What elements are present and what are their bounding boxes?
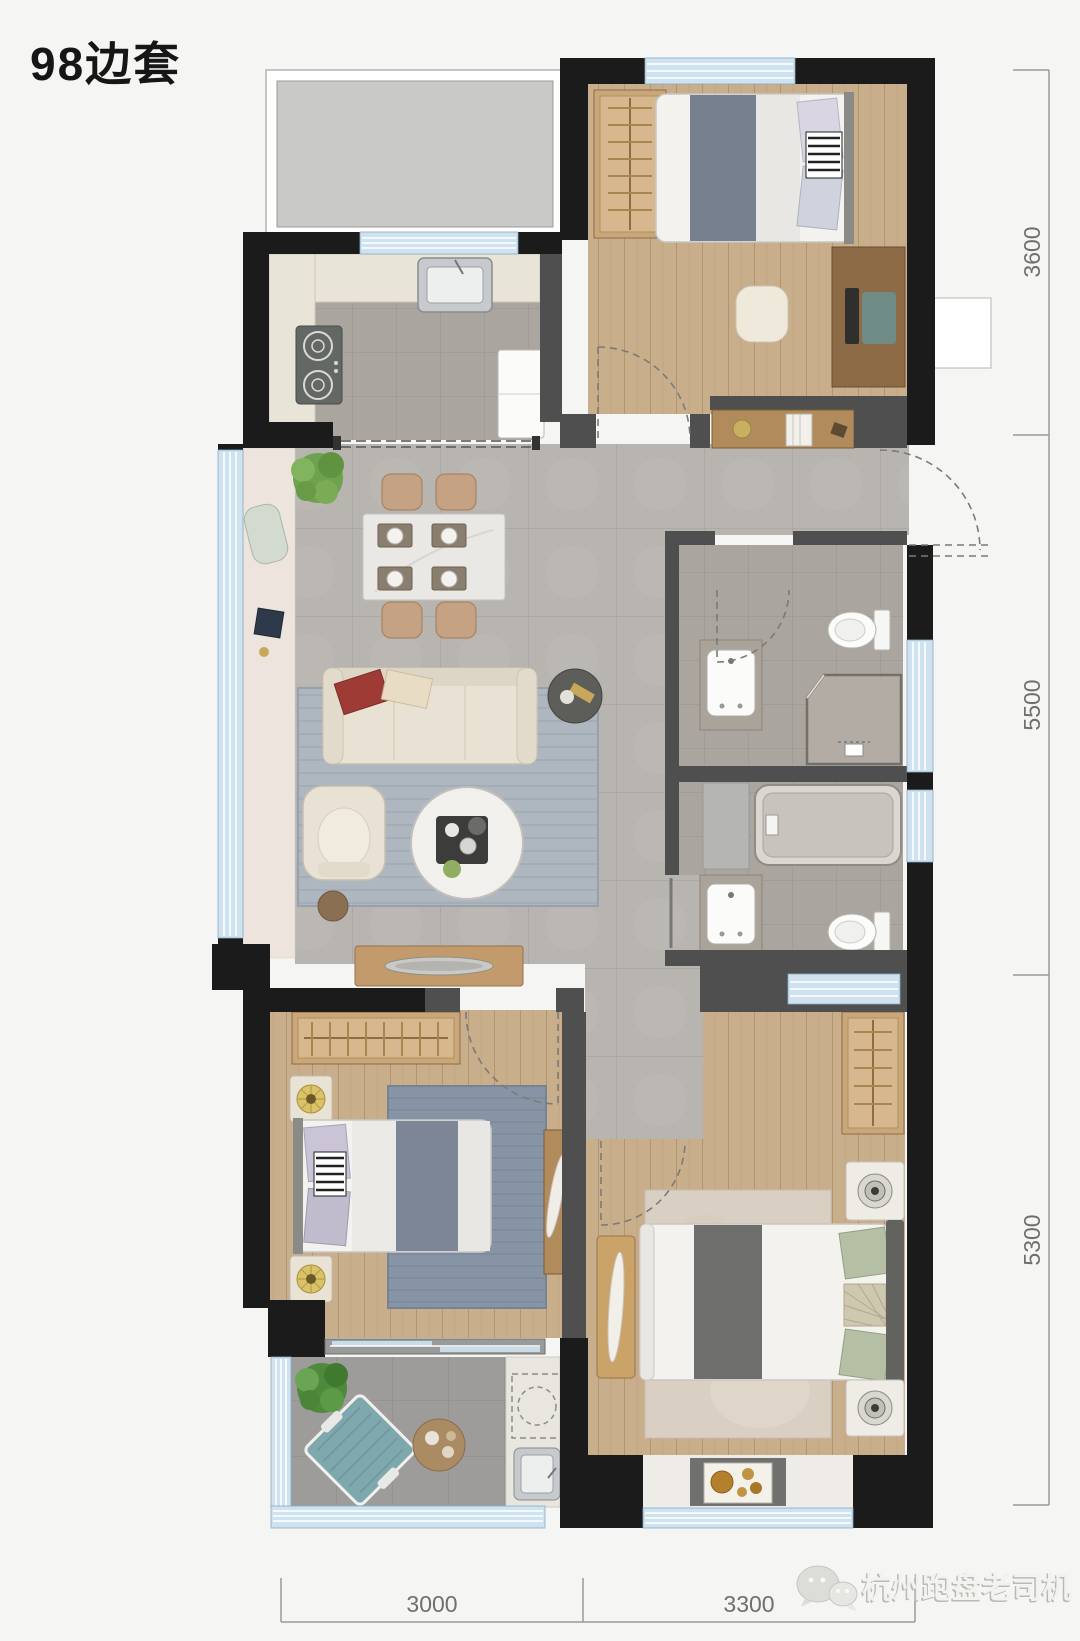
- wardrobe-master: [292, 1012, 460, 1064]
- corridor-floor: [585, 964, 703, 1139]
- bed-duvet-master: [396, 1121, 458, 1251]
- zebra-pillow-master: [314, 1152, 346, 1196]
- plan-title: 98边套: [30, 38, 181, 90]
- kitchen-sink: [418, 258, 492, 312]
- dining-chair: [382, 474, 422, 510]
- side-table: [548, 669, 602, 723]
- stove-cooktop: [296, 326, 342, 404]
- balcony-small-item: [259, 647, 269, 657]
- desk-mat: [862, 292, 896, 344]
- dimension-label-3600: 3600: [1019, 226, 1045, 277]
- bed-pillow-sage: [839, 1329, 891, 1381]
- bed-duvet: [690, 95, 756, 241]
- wardrobe-2: [842, 1012, 904, 1134]
- dimension-label-3000: 3000: [406, 1591, 457, 1617]
- nightstand-2: [846, 1162, 904, 1220]
- dimension-label-3300: 3300: [723, 1591, 774, 1617]
- laundry-sink: [514, 1448, 560, 1500]
- side-table-2: [413, 1419, 465, 1471]
- watermark-text: 杭州跑盘老司机: [862, 1571, 1072, 1605]
- console-plant: [733, 420, 751, 438]
- window-bay-bedroom2: [643, 1508, 853, 1528]
- window-bathroom-second: [907, 790, 933, 862]
- toilet: [828, 610, 890, 650]
- bench: [597, 1236, 635, 1378]
- wardrobe: [594, 90, 666, 238]
- shower: [807, 675, 901, 764]
- headboard-2: [886, 1220, 904, 1382]
- ac-platform: [933, 298, 991, 368]
- vanity-sink: [700, 640, 762, 730]
- bath-ledge: [703, 783, 749, 869]
- living-console: [355, 946, 523, 986]
- void-area: [266, 70, 564, 238]
- dining-chair: [436, 602, 476, 638]
- zebra-pillow: [806, 132, 842, 178]
- toilet-2: [828, 912, 890, 952]
- headboard: [844, 92, 854, 244]
- bed-pillow: [304, 1188, 351, 1245]
- desk-chair: [736, 286, 788, 342]
- vanity-sink-2: [700, 875, 762, 953]
- monitor: [845, 288, 859, 344]
- nightstand: [290, 1256, 332, 1302]
- bed-double: [656, 92, 854, 244]
- bathtub: [755, 785, 901, 865]
- bed-pillow-diamond: [844, 1284, 886, 1326]
- balcony-book: [254, 608, 284, 638]
- bed-pillow-sage: [839, 1227, 891, 1279]
- dining-chair: [382, 602, 422, 638]
- dining-chair: [436, 474, 476, 510]
- sofa: [323, 668, 537, 764]
- refrigerator: [498, 350, 544, 438]
- bed-throw: [694, 1225, 762, 1379]
- coffee-table: [411, 787, 523, 899]
- dimension-label-5500: 5500: [1019, 679, 1045, 730]
- window-south-balcony-west: [271, 1357, 291, 1508]
- window-bathroom-main: [907, 640, 933, 772]
- bay-tray: [690, 1458, 786, 1506]
- nightstand: [290, 1076, 332, 1122]
- floor-plan-svg: 98边套: [0, 0, 1080, 1641]
- floor-plan-page: 98边套: [0, 0, 1080, 1641]
- window-west-balcony: [218, 450, 243, 938]
- window-bedroom-topright: [645, 58, 795, 84]
- headboard-master: [293, 1118, 303, 1254]
- bed-2: [640, 1220, 904, 1382]
- window-transom-bedroom2: [788, 974, 900, 1004]
- console-books: [786, 414, 812, 446]
- nightstand-2: [846, 1380, 904, 1436]
- sliding-door-master-balcony: [325, 1339, 545, 1354]
- window-south-balcony-bottom: [271, 1506, 545, 1528]
- bed-master: [293, 1118, 491, 1254]
- window-kitchen: [360, 232, 518, 254]
- dimension-label-5300: 5300: [1019, 1214, 1045, 1265]
- armchair: [303, 786, 385, 880]
- potted-plant: [291, 452, 344, 504]
- pouf: [318, 891, 348, 921]
- potted-plant-2: [295, 1363, 348, 1413]
